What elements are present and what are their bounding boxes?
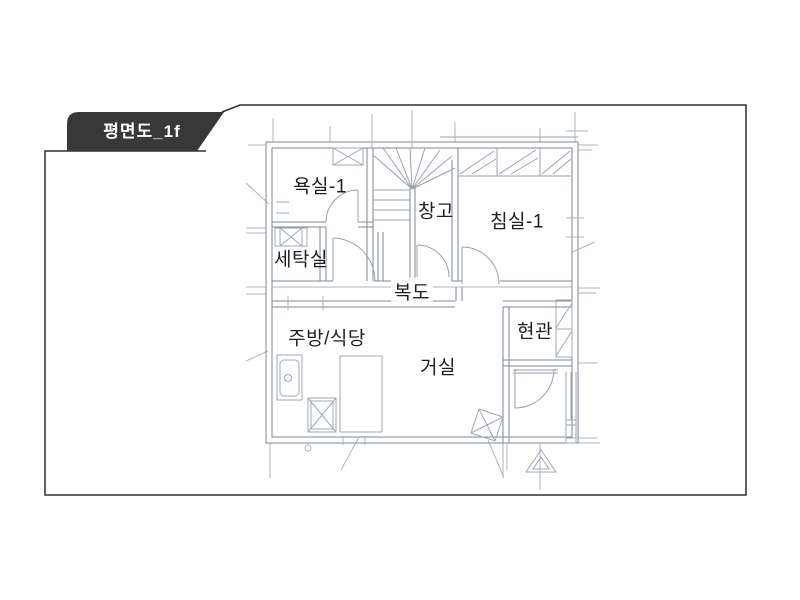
- room-label-bedroom-1: 침실-1: [490, 207, 544, 234]
- room-label-kitchen-dining: 주방/식당: [288, 324, 366, 351]
- bedroom-closet: [440, 137, 578, 176]
- kitchen-table: [308, 398, 336, 432]
- room-label-living: 거실: [420, 353, 456, 380]
- level-marker-triangle: [526, 450, 556, 472]
- living-plant-symbol: [471, 409, 503, 441]
- towel-bar: [276, 202, 289, 213]
- floor-plan-page: 평면도_1f 욕실-1 창고 침실-1 세탁실 복도 주방/식당 현관 거실: [0, 0, 800, 600]
- bathtub-symbol: [333, 148, 363, 165]
- room-label-bathroom-1: 욕실-1: [293, 172, 347, 199]
- kitchen-sink: [277, 355, 302, 400]
- floor-tab[interactable]: 평면도_1f: [67, 112, 217, 151]
- room-label-corridor: 복도: [391, 278, 433, 305]
- room-label-entrance: 현관: [517, 317, 553, 344]
- shoe-cabinet: [556, 300, 576, 443]
- room-label-laundry: 세탁실: [274, 245, 328, 272]
- dining-counter: [340, 356, 382, 432]
- room-label-storage: 창고: [418, 197, 454, 224]
- washer-symbol: [275, 228, 307, 246]
